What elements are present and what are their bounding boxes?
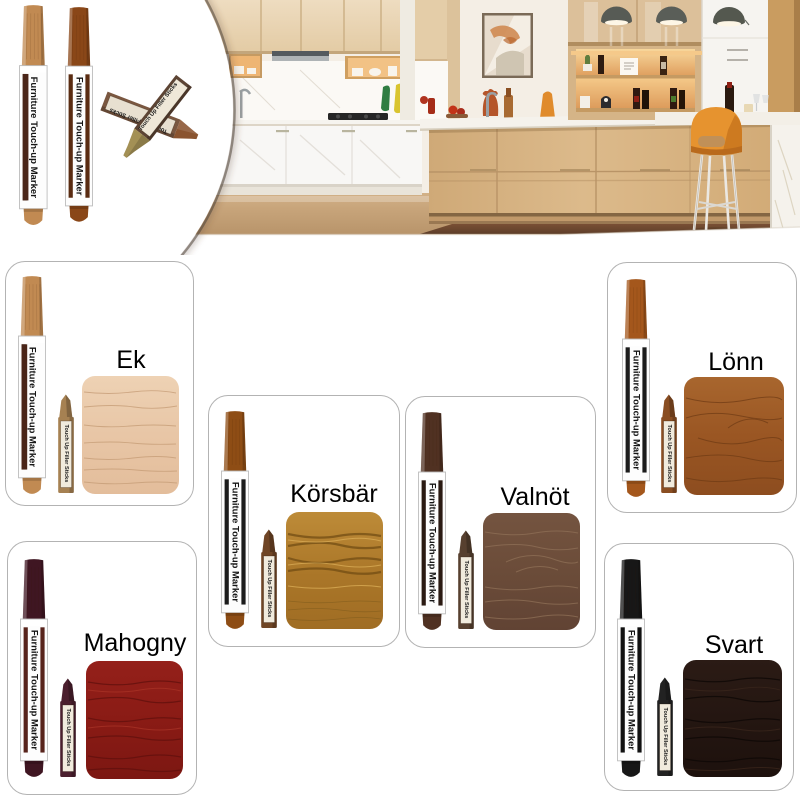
svg-text:Touch Up Filler Sticks: Touch Up Filler Sticks [266, 560, 272, 618]
svg-text:Touch Up Filler Sticks: Touch Up Filler Sticks [65, 709, 71, 767]
svg-text:Furniture Touch-up Marker: Furniture Touch-up Marker [428, 483, 438, 604]
svg-text:Furniture Touch-up Marker: Furniture Touch-up Marker [627, 630, 637, 751]
svg-text:Furniture Touch-up Marker: Furniture Touch-up Marker [632, 350, 642, 471]
svg-text:Touch Up Filler Sticks: Touch Up Filler Sticks [63, 425, 69, 483]
svg-text:Furniture Touch-up Marker: Furniture Touch-up Marker [231, 482, 241, 603]
svg-text:Furniture Touch-up Marker: Furniture Touch-up Marker [28, 347, 38, 468]
svg-text:Furniture Touch-up Marker: Furniture Touch-up Marker [75, 77, 85, 196]
svg-text:Furniture Touch-up Marker: Furniture Touch-up Marker [30, 630, 40, 751]
svg-text:Touch Up Filler Sticks: Touch Up Filler Sticks [463, 561, 469, 619]
svg-text:Furniture Touch-up Marker: Furniture Touch-up Marker [28, 77, 39, 199]
svg-text:Touch Up Filler Sticks: Touch Up Filler Sticks [666, 425, 672, 483]
svg-text:Touch Up Filler Sticks: Touch Up Filler Sticks [662, 708, 668, 766]
